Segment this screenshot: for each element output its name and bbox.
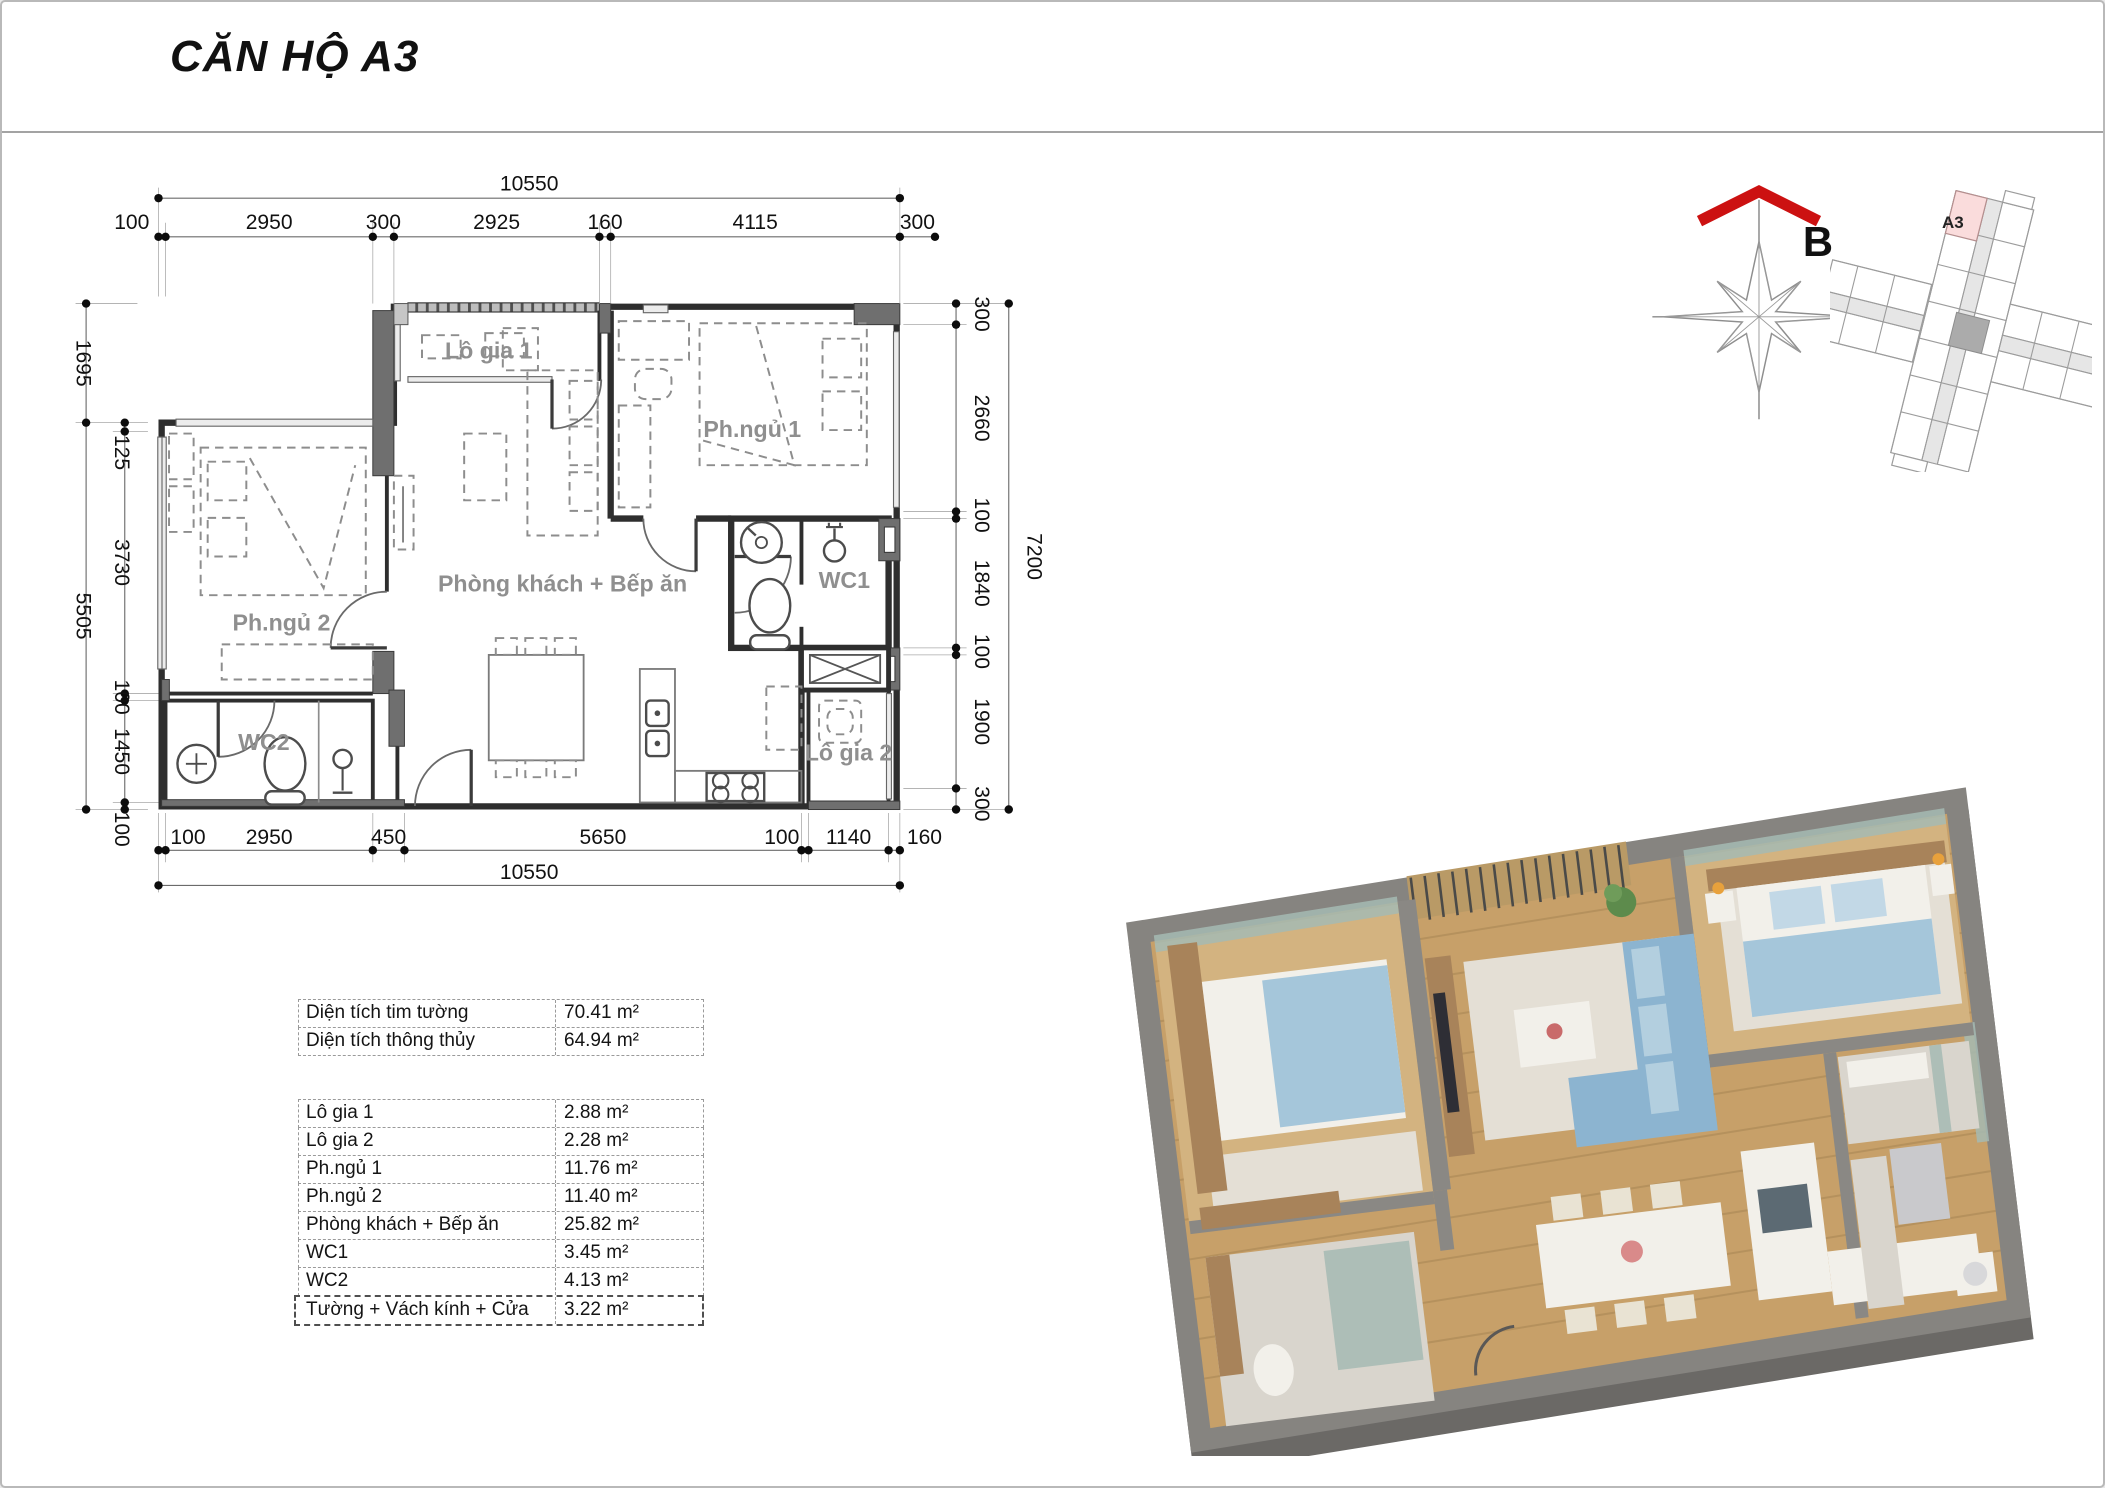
- floor-plan-2d: Lô gia 1 Ph.ngủ 1 Ph.ngủ 2 Phòng khách +…: [32, 170, 1072, 922]
- svg-text:4115: 4115: [733, 211, 778, 234]
- shaft: [801, 648, 888, 690]
- svg-text:160: 160: [907, 826, 942, 849]
- table-row: Diện tích thông thủy 64.94 m²: [298, 1027, 704, 1056]
- table-row: Ph.ngủ 1 11.76 m²: [298, 1155, 704, 1184]
- svg-text:125: 125: [110, 435, 133, 470]
- table-row: Diện tích tim tường 70.41 m²: [298, 999, 704, 1028]
- svg-text:2925: 2925: [473, 211, 520, 234]
- key-plan: A3: [1830, 190, 2092, 472]
- table-row: WC1 3.45 m²: [298, 1239, 704, 1268]
- table-row: Phòng khách + Bếp ăn 25.82 m²: [298, 1211, 704, 1240]
- svg-text:100: 100: [970, 497, 993, 532]
- north-label: B: [1803, 218, 1833, 265]
- key-plan-svg: A3: [1830, 190, 2092, 472]
- area-summary-table: Diện tích tim tường 70.41 m² Diện tích t…: [298, 999, 704, 1056]
- svg-text:2950: 2950: [246, 826, 293, 849]
- svg-text:5505: 5505: [71, 593, 94, 640]
- svg-text:1450: 1450: [110, 728, 133, 775]
- fridge-icon: [1889, 1143, 1950, 1225]
- svg-text:5650: 5650: [580, 826, 627, 849]
- svg-text:300: 300: [900, 211, 935, 234]
- svg-text:2950: 2950: [246, 211, 293, 234]
- bathroom-fixtures: [177, 522, 845, 804]
- room-label-logia1: Lô gia 1: [445, 337, 533, 363]
- floor-plan-sheet: CĂN HỘ A3: [0, 0, 2105, 1488]
- render-bedroom1: [1702, 840, 1968, 1033]
- svg-text:300: 300: [366, 211, 401, 234]
- sink-icon: [1757, 1184, 1812, 1234]
- table-row: Ph.ngủ 2 11.40 m²: [298, 1183, 704, 1212]
- svg-text:300: 300: [970, 297, 993, 332]
- floor-plan-svg: Lô gia 1 Ph.ngủ 1 Ph.ngủ 2 Phòng khách +…: [32, 170, 1072, 922]
- svg-text:100: 100: [114, 211, 149, 234]
- svg-text:100: 100: [110, 812, 133, 847]
- svg-text:2660: 2660: [970, 395, 993, 442]
- render-3d-svg: [1098, 740, 2084, 1456]
- unit-a3-label: A3: [1942, 213, 1964, 232]
- page-title: CĂN HỘ A3: [170, 32, 419, 82]
- dimensions-top: 100 2950 300 2925 160 4115 300 10550: [114, 172, 939, 303]
- svg-text:1840: 1840: [970, 560, 993, 607]
- svg-text:300: 300: [970, 786, 993, 821]
- room-label-wc2: WC2: [238, 729, 290, 755]
- svg-text:10550: 10550: [500, 172, 559, 195]
- svg-text:100: 100: [970, 634, 993, 669]
- svg-text:450: 450: [371, 826, 406, 849]
- table-row-total: Tường + Vách kính + Cửa 3.22 m²: [294, 1295, 704, 1326]
- table-row: WC2 4.13 m²: [298, 1267, 704, 1296]
- render-3d: [1098, 740, 2084, 1456]
- svg-text:7200: 7200: [1023, 533, 1046, 580]
- room-label-bedroom2: Ph.ngủ 2: [233, 609, 331, 635]
- header-divider: [2, 131, 2103, 133]
- room-label-bedroom1: Ph.ngủ 1: [703, 416, 801, 442]
- room-label-living: Phòng khách + Bếp ăn: [438, 571, 687, 597]
- svg-text:1140: 1140: [826, 826, 871, 849]
- area-table: Diện tích tim tường 70.41 m² Diện tích t…: [298, 1000, 704, 1326]
- dimensions-left: 125 3730 100 1450 100 1695 5505: [71, 299, 158, 846]
- room-label-logia2: Lô gia 2: [805, 739, 893, 765]
- svg-text:100: 100: [170, 826, 205, 849]
- svg-text:100: 100: [764, 826, 799, 849]
- render-wc2: [1205, 1232, 1434, 1426]
- table-row: Lô gia 2 2.28 m²: [298, 1127, 704, 1156]
- table-row: Lô gia 1 2.88 m²: [298, 1099, 704, 1128]
- svg-text:10550: 10550: [500, 861, 559, 884]
- svg-text:1900: 1900: [970, 698, 993, 745]
- area-rooms-table: Lô gia 1 2.88 m² Lô gia 2 2.28 m² Ph.ngủ…: [298, 1099, 704, 1326]
- dimensions-bottom: 100 2950 450 5650 100 1140 160 10550: [154, 813, 942, 892]
- room-label-wc1: WC1: [819, 567, 871, 593]
- svg-text:100: 100: [110, 679, 133, 714]
- balcony1-rail: [408, 303, 599, 312]
- svg-text:3730: 3730: [110, 539, 133, 586]
- key-plan-core: [1948, 312, 1989, 353]
- svg-text:160: 160: [587, 211, 622, 234]
- dimensions-right: 300 2660 100 1840 100 1900 300 7200: [903, 297, 1045, 822]
- render-apartment: [1122, 787, 2037, 1456]
- svg-text:1695: 1695: [71, 340, 94, 387]
